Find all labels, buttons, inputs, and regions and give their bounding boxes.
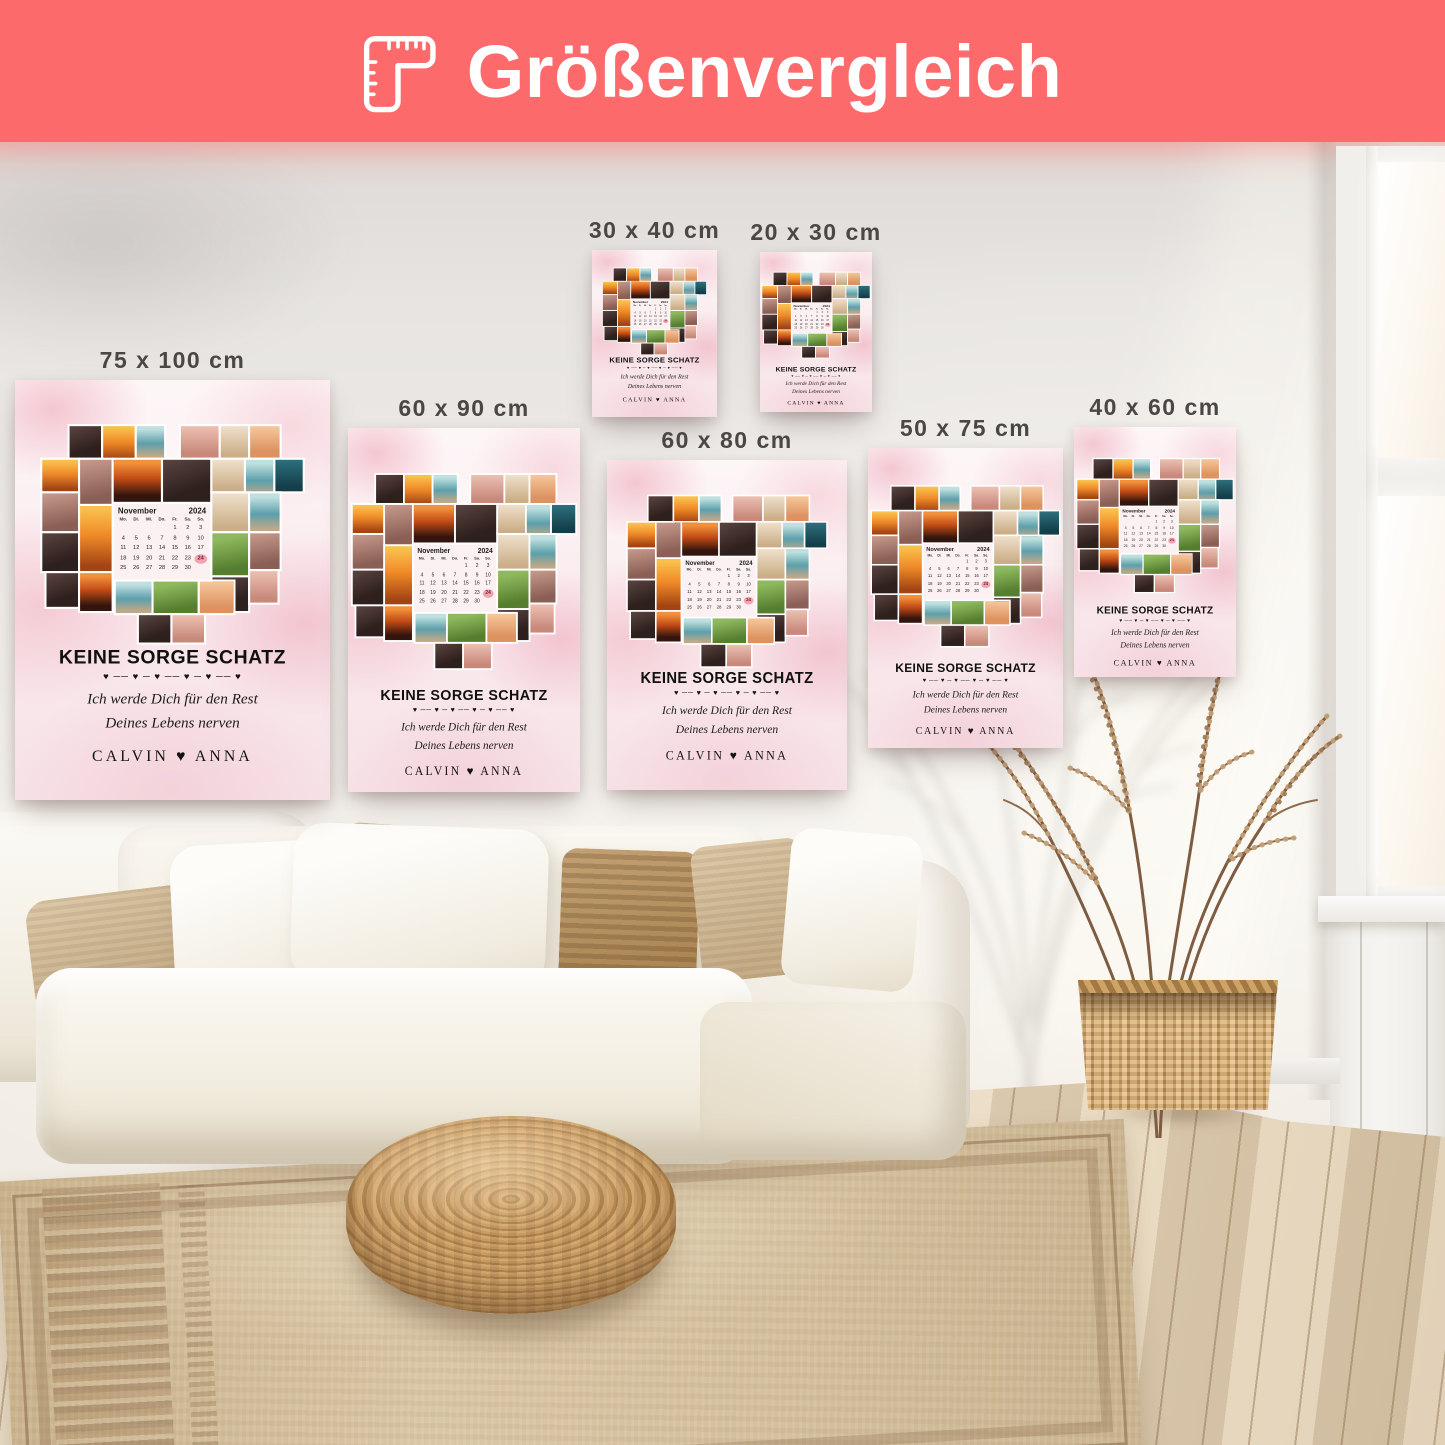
calendar-day: 26 [427, 598, 438, 607]
calendar-weekday: Di. [694, 567, 704, 572]
calendar-weekday-row: Mo.Di.Mi.Do.Fr.Sa.So. [1120, 515, 1178, 519]
calendar-weekday: Di. [427, 556, 438, 562]
collage-photo [530, 571, 555, 603]
calendar-day: 10 [483, 571, 494, 580]
calendar-weekday: So. [981, 553, 990, 558]
couple-names: CALVIN ♥ ANNA [1074, 659, 1236, 668]
collage-photo [1179, 525, 1200, 551]
collage-photo [657, 612, 681, 642]
collage-photo [762, 286, 777, 298]
calendar-day: 23 [181, 554, 194, 564]
poster: November 2024 Mo.Di.Mi.Do.Fr.Sa.So. 1234… [348, 428, 580, 792]
poster-artwork: November 2024 Mo.Di.Mi.Do.Fr.Sa.So. 1234… [760, 252, 872, 412]
calendar-day: 10 [744, 581, 754, 589]
banner-title: Größenvergleich [467, 29, 1063, 114]
collage-photo [80, 506, 112, 571]
collage-photo [353, 505, 384, 533]
calendar-day: 12 [130, 544, 143, 554]
calendar: November 2024 Mo.Di.Mi.Do.Fr.Sa.So. 1234… [923, 544, 992, 601]
calendar-day: 13 [704, 589, 714, 597]
calendar-day: 11 [416, 580, 427, 589]
collage-photo [405, 475, 432, 507]
collage-photo [353, 535, 384, 569]
collage-photo [154, 582, 198, 614]
calendar-day [704, 573, 714, 581]
poster-headline: KEINE SORGE SCHATZ [15, 647, 330, 668]
calendar-day: 2 [972, 559, 981, 566]
calendar-month: November [926, 545, 954, 552]
couple-names: CALVIN ♥ ANNA [15, 749, 330, 767]
poster-artwork: November 2024 Mo.Di.Mi.Do.Fr.Sa.So. 1234… [868, 448, 1063, 748]
collage-photo [1094, 459, 1113, 478]
calendar-day: 19 [427, 589, 438, 598]
collage-photo [816, 347, 829, 358]
collage-photo [727, 645, 751, 666]
calendar-day: 25 [416, 598, 427, 607]
calendar-day: 7 [450, 571, 461, 580]
collage-photo [1201, 548, 1217, 567]
calendar-weekday: Do. [714, 567, 724, 572]
collage-photo [685, 268, 697, 281]
collage-photo [221, 426, 248, 458]
calendar-day: 28 [714, 605, 724, 613]
couple-names: CALVIN ♥ ANNA [592, 397, 717, 404]
collage-photo [618, 300, 631, 326]
collage-photo [952, 601, 984, 624]
collage-photo [618, 282, 631, 300]
collage-tiles: November 2024 Mo.Di.Mi.Do.Fr.Sa.So. 1234… [592, 268, 717, 357]
poster-headline: KEINE SORGE SCHATZ [868, 661, 1063, 675]
calendar-day: 20 [438, 589, 449, 598]
calendar-day: 16 [972, 573, 981, 580]
collage-photo [872, 511, 898, 534]
calendar-day: 13 [944, 573, 953, 580]
collage-photo [1021, 566, 1042, 592]
collage-photo [116, 582, 152, 614]
poster-60x80: 60 x 80 cm November 2024 Mo.Di.Mi.Do.Fr.… [607, 420, 847, 790]
calendar-day: 3 [194, 524, 207, 534]
collage-photo [47, 573, 79, 607]
calendar-day: 11 [926, 573, 935, 580]
poster-size-label: 60 x 80 cm [661, 420, 792, 460]
heart-photo-collage: November 2024 Mo.Di.Mi.Do.Fr.Sa.So. 1234… [15, 426, 330, 649]
calendar-weekday: Fr. [1153, 515, 1161, 519]
calendar-header: November 2024 [414, 544, 497, 555]
calendar-weekday: Mo. [1122, 515, 1130, 519]
calendar-dates-grid: 1234567891011121314151617181920212223242… [792, 311, 832, 331]
calendar-day: 9 [972, 566, 981, 573]
calendar-day: 29 [963, 588, 972, 595]
calendar-weekday: Do. [1145, 515, 1153, 519]
heart-divider: ♥ ── ♥ ─ ♥ ── ♥ ─ ♥ ── ♥ [607, 690, 847, 697]
poster-30x40: 30 x 40 cm November 2024 Mo.Di.Mi.Do.Fr.… [592, 210, 717, 417]
calendar-day [1168, 544, 1176, 550]
poster: November 2024 Mo.Di.Mi.Do.Fr.Sa.So. 1234… [760, 252, 872, 412]
collage-photo [966, 626, 989, 646]
collage-photo [827, 334, 841, 346]
calendar-header: November 2024 [114, 504, 211, 517]
calendar-weekday: Sa. [734, 567, 744, 572]
calendar-weekday: Mo. [926, 553, 935, 558]
calendar-day: 2 [734, 573, 744, 581]
calendar-day: 1 [168, 524, 181, 534]
collage-photo [805, 523, 826, 548]
calendar-day [744, 605, 754, 613]
calendar-weekday: Fr. [168, 517, 181, 523]
collage-photo [720, 523, 756, 556]
calendar: November 2024 Mo.Di.Mi.Do.Fr.Sa.So. 1234… [682, 557, 756, 618]
collage-photo [985, 601, 1009, 624]
collage-photo [685, 311, 697, 325]
calendar-weekday: Di. [935, 553, 944, 558]
collage-photo [994, 511, 1017, 534]
script-line-1: Ich werde Dich für den Rest [348, 719, 580, 737]
collage-photo [783, 523, 804, 553]
collage-photo [713, 618, 747, 643]
collage-photo [685, 326, 696, 339]
collage-photo [1155, 575, 1174, 592]
poster-size-label: 75 x 100 cm [100, 340, 246, 380]
collage-photo [858, 286, 869, 298]
calendar: November 2024 Mo.Di.Mi.Do.Fr.Sa.So. 1234… [792, 303, 832, 334]
poster-text-block: KEINE SORGE SCHATZ ♥ ── ♥ ─ ♥ ── ♥ ─ ♥ ─… [868, 661, 1063, 737]
collage-photo [733, 496, 762, 521]
ruler-icon [355, 28, 441, 114]
collage-photo [774, 273, 787, 285]
header-banner: Größenvergleich [0, 0, 1445, 142]
collage-photo [471, 475, 503, 503]
calendar-header: November 2024 [923, 544, 992, 553]
calendar-day: 28 [156, 564, 169, 574]
calendar-day: 5 [694, 581, 704, 589]
collage-photo [658, 268, 673, 281]
calendar-day: 15 [963, 573, 972, 580]
calendar-day: 6 [704, 581, 714, 589]
collage-photo [959, 511, 993, 542]
collage-photo [1149, 480, 1177, 506]
collage-photo [385, 546, 412, 604]
collage-photo [1134, 459, 1150, 478]
collage-photo [649, 496, 673, 521]
collage-photo [651, 282, 670, 299]
calendar: November 2024 Mo.Di.Mi.Do.Fr.Sa.So. 1234… [414, 544, 497, 613]
collage-photo [42, 533, 78, 571]
collage-photo [848, 330, 859, 342]
calendar-weekday: Mo. [117, 517, 130, 523]
collage-photo [628, 523, 655, 548]
script-line-2: Deines Lebens nerven [1074, 639, 1236, 651]
collage-photo [916, 487, 939, 513]
calendar-weekday: Sa. [972, 553, 981, 558]
calendar-day: 17 [483, 580, 494, 589]
calendar-day [438, 562, 449, 571]
calendar-day: 6 [438, 571, 449, 580]
calendar-day: 22 [724, 597, 734, 605]
calendar-day: 3 [744, 573, 754, 581]
collage-photo [1077, 480, 1098, 499]
poster: November 2024 Mo.Di.Mi.Do.Fr.Sa.So. 1234… [607, 460, 847, 790]
couple-names: CALVIN ♥ ANNA [760, 400, 872, 406]
collage-photo [832, 315, 847, 331]
collage-photo [872, 566, 898, 594]
poster-gallery: 75 x 100 cm November 2024 Mo.Di.Mi.Do.Fr… [0, 0, 1445, 1445]
calendar-day: 16 [734, 589, 744, 597]
calendar-day: 17 [1168, 532, 1176, 538]
collage-photo [250, 571, 277, 603]
calendar-day: 11 [685, 589, 695, 597]
collage-photo [456, 505, 496, 543]
calendar-day [694, 573, 704, 581]
calendar-day: 14 [714, 589, 724, 597]
collage-photo [114, 460, 161, 502]
collage-photo [139, 615, 171, 642]
collage-photo [682, 523, 718, 556]
collage-photo [1121, 555, 1142, 574]
poster-artwork: November 2024 Mo.Di.Mi.Do.Fr.Sa.So. 1234… [15, 380, 330, 800]
collage-tiles: November 2024 Mo.Di.Mi.Do.Fr.Sa.So. 1234… [751, 273, 881, 360]
collage-photo [832, 299, 847, 314]
calendar-weekday: Mi. [944, 553, 953, 558]
collage-photo [685, 295, 697, 310]
poster-size-label: 40 x 60 cm [1089, 387, 1220, 427]
calendar-day: 10 [981, 566, 990, 573]
calendar-day: 14 [450, 580, 461, 589]
script-line-2: Deines Lebens nerven [348, 737, 580, 755]
collage-photo [505, 475, 528, 503]
collage-photo [757, 549, 784, 579]
calendar-day: 27 [944, 588, 953, 595]
calendar-day: 30 [472, 598, 483, 607]
collage-photo [103, 426, 135, 462]
collage-photo [670, 282, 683, 295]
calendar-day: 17 [744, 589, 754, 597]
calendar-day: 29 [461, 598, 472, 607]
collage-photo [872, 536, 898, 564]
collage-photo [80, 460, 112, 504]
calendar-day [663, 323, 668, 327]
calendar-year: 2024 [739, 559, 752, 566]
calendar-day: 5 [427, 571, 438, 580]
calendar-day [416, 562, 427, 571]
poster: November 2024 Mo.Di.Mi.Do.Fr.Sa.So. 1234… [1074, 427, 1236, 677]
collage-photo [80, 573, 112, 611]
calendar-day: 23 [734, 597, 744, 605]
script-line-1: Ich werde Dich für den Rest [760, 380, 872, 388]
calendar-day: 22 [461, 589, 472, 598]
calendar-weekday: Fr. [461, 556, 472, 562]
collage-photo [657, 523, 681, 558]
calendar-day: 28 [450, 598, 461, 607]
collage-photo [641, 344, 654, 355]
collage-photo [435, 644, 462, 668]
couple-names: CALVIN ♥ ANNA [607, 750, 847, 764]
calendar-day: 30 [972, 588, 981, 595]
collage-photo [632, 330, 646, 343]
collage-photo [700, 496, 721, 521]
script-line-1: Ich werde Dich für den Rest [1074, 627, 1236, 639]
calendar-day: 9 [181, 534, 194, 544]
collage-photo [1201, 525, 1219, 547]
collage-photo [762, 299, 777, 314]
collage-photo [627, 268, 640, 282]
calendar-day: 21 [953, 581, 962, 588]
collage-photo [647, 330, 665, 343]
calendar-day: 6 [944, 566, 953, 573]
calendar-day: 8 [963, 566, 972, 573]
calendar-day: 27 [438, 598, 449, 607]
collage-photo [1021, 593, 1041, 616]
calendar-day: 13 [143, 544, 156, 554]
collage-photo [848, 273, 860, 285]
script-line-2: Deines Lebens nerven [760, 388, 872, 396]
collage-photo [792, 286, 811, 302]
collage-photo [1100, 508, 1119, 548]
script-line-2: Deines Lebens nerven [607, 721, 847, 740]
script-line-1: Ich werde Dich für den Rest [15, 688, 330, 712]
calendar-day: 3 [483, 562, 494, 571]
collage-photo [552, 505, 575, 533]
collage-photo [674, 496, 698, 524]
poster-size-label: 30 x 40 cm [589, 210, 720, 250]
calendar-weekday: Do. [156, 517, 169, 523]
collage-photo [940, 487, 960, 510]
calendar-day: 18 [685, 597, 695, 605]
collage-photo [498, 571, 529, 609]
collage-photo [527, 505, 550, 539]
calendar: November 2024 Mo.Di.Mi.Do.Fr.Sa.So. 1234… [114, 504, 211, 582]
poster: November 2024 Mo.Di.Mi.Do.Fr.Sa.So. 1234… [592, 250, 717, 417]
calendar-day [117, 524, 130, 534]
calendar-weekday: Sa. [181, 517, 194, 523]
calendar-year: 2024 [1165, 508, 1175, 514]
collage-photo [786, 610, 807, 635]
collage-photo [778, 286, 791, 303]
calendar-day: 20 [944, 581, 953, 588]
calendar-day: 9 [734, 581, 744, 589]
calendar-header: November 2024 [682, 557, 756, 567]
calendar-weekday: Do. [953, 553, 962, 558]
collage-photo [762, 315, 777, 330]
collage-photo [1100, 480, 1119, 507]
collage-photo [448, 614, 486, 642]
collage-photo [899, 511, 922, 543]
collage-photo [1114, 459, 1133, 481]
collage-photo [748, 618, 774, 643]
collage-photo [1000, 487, 1020, 510]
calendar-day: 28 [1145, 544, 1153, 550]
collage-photo [1039, 511, 1059, 534]
script-line-2: Deines Lebens nerven [868, 703, 1063, 718]
calendar-weekday: Mi. [143, 517, 156, 523]
calendar-dates-grid: 1234567891011121314151617181920212223242… [923, 558, 992, 596]
collage-photo [1077, 525, 1098, 548]
collage-photo [433, 475, 456, 503]
calendar-day: 20 [143, 554, 156, 564]
calendar-day: 3 [981, 559, 990, 566]
collage-tiles: November 2024 Mo.Di.Mi.Do.Fr.Sa.So. 1234… [15, 426, 330, 649]
calendar-day: 18 [416, 589, 427, 598]
collage-photo [385, 606, 412, 640]
collage-photo [684, 618, 711, 643]
collage-photo [250, 493, 279, 531]
calendar-day: 27 [143, 564, 156, 574]
collage-photo [899, 545, 922, 593]
size-comparison-graphic: 75 x 100 cm November 2024 Mo.Di.Mi.Do.Fr… [0, 0, 1445, 1445]
collage-photo [657, 559, 681, 610]
calendar-day: 1 [963, 559, 972, 566]
calendar-weekday: Mo. [685, 567, 695, 572]
collage-photo [801, 273, 812, 285]
calendar-day: 24 [744, 597, 754, 605]
calendar-day: 7 [714, 581, 724, 589]
poster-text-block: KEINE SORGE SCHATZ ♥ ── ♥ ─ ♥ ── ♥ ─ ♥ ─… [1074, 605, 1236, 668]
collage-photo [42, 460, 78, 492]
poster-size-label: 60 x 90 cm [398, 388, 529, 428]
collage-photo [994, 536, 1020, 564]
heart-divider: ♥ ── ♥ ─ ♥ ── ♥ ─ ♥ ── ♥ [15, 672, 330, 681]
calendar-day: 15 [461, 580, 472, 589]
calendar-day: 27 [704, 605, 714, 613]
calendar-day: 9 [472, 571, 483, 580]
calendar-day: 20 [704, 597, 714, 605]
calendar-day [714, 573, 724, 581]
collage-photo [786, 496, 808, 521]
collage-photo [250, 426, 279, 458]
collage-photo [832, 286, 845, 298]
calendar-day: 16 [472, 580, 483, 589]
calendar-day: 24 [483, 589, 494, 598]
collage-photo [498, 535, 529, 569]
collage-photo [530, 604, 553, 632]
poster-headline: KEINE SORGE SCHATZ [607, 670, 847, 687]
collage-photo [1100, 549, 1119, 572]
calendar-day: 26 [1129, 544, 1137, 550]
poster-artwork: November 2024 Mo.Di.Mi.Do.Fr.Sa.So. 1234… [607, 460, 847, 790]
calendar-day: 4 [416, 571, 427, 580]
calendar-weekday-row: Mo.Di.Mi.Do.Fr.Sa.So. [114, 517, 211, 523]
calendar-day: 29 [1153, 544, 1161, 550]
calendar-day: 7 [156, 534, 169, 544]
script-line-2: Deines Lebens nerven [592, 382, 717, 391]
calendar-weekday: So. [1168, 515, 1176, 519]
calendar-day: 12 [694, 589, 704, 597]
calendar-weekday: So. [194, 517, 207, 523]
collage-photo [1135, 575, 1154, 592]
calendar-day: 21 [156, 554, 169, 564]
poster-text-block: KEINE SORGE SCHATZ ♥ ── ♥ ─ ♥ ── ♥ ─ ♥ ─… [760, 366, 872, 407]
calendar-day: 8 [168, 534, 181, 544]
calendar-day: 5 [130, 534, 143, 544]
poster-40x60: 40 x 60 cm November 2024 Mo.Di.Mi.Do.Fr.… [1074, 387, 1236, 677]
heart-photo-collage: November 2024 Mo.Di.Mi.Do.Fr.Sa.So. 1234… [348, 475, 580, 646]
calendar-weekday: Sa. [1160, 515, 1168, 519]
collage-photo [353, 571, 384, 605]
collage-photo [246, 460, 273, 498]
calendar-day: 2 [181, 524, 194, 534]
heart-divider: ♥ ── ♥ ─ ♥ ── ♥ ─ ♥ ── ♥ [348, 707, 580, 714]
collage-photo [414, 505, 454, 543]
calendar-day: 6 [143, 534, 156, 544]
collage-photo [674, 268, 685, 281]
calendar-day: 12 [935, 573, 944, 580]
script-line-1: Ich werde Dich für den Rest [607, 702, 847, 721]
calendar: November 2024 Mo.Di.Mi.Do.Fr.Sa.So. 1234… [1120, 507, 1178, 555]
calendar-day: 22 [963, 581, 972, 588]
calendar-weekday: Di. [1129, 515, 1137, 519]
collage-photo [778, 304, 791, 330]
calendar-weekday: Mo. [416, 556, 427, 562]
collage-photo [1160, 459, 1183, 478]
